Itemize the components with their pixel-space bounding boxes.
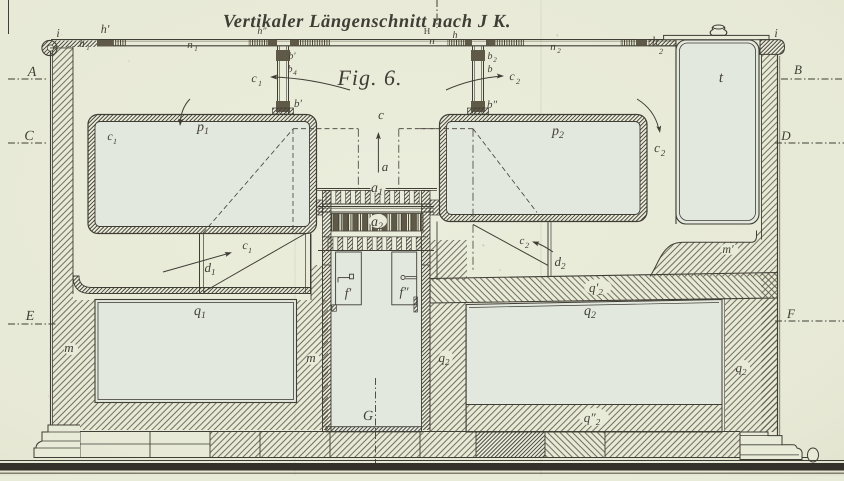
svg-text:C: C (24, 129, 34, 144)
svg-text:f″: f″ (399, 284, 409, 299)
svg-text:1: 1 (248, 246, 252, 255)
svg-text:b: b (488, 64, 493, 75)
svg-text:2: 2 (659, 47, 663, 56)
svg-text:n: n (187, 39, 193, 51)
svg-text:2: 2 (557, 47, 561, 55)
svg-text:E: E (25, 309, 35, 324)
svg-text:1: 1 (113, 137, 117, 146)
svg-text:1: 1 (194, 45, 198, 53)
svg-text:D: D (780, 128, 791, 143)
svg-text:a: a (382, 159, 389, 174)
svg-text:i: i (56, 26, 59, 40)
svg-text:Fig. 6.: Fig. 6. (336, 65, 402, 90)
svg-text:m: m (64, 340, 73, 355)
svg-text:4: 4 (293, 69, 297, 77)
svg-text:b″: b″ (487, 99, 498, 111)
svg-text:2: 2 (516, 77, 520, 86)
svg-text:b: b (488, 51, 493, 62)
svg-text:h: h (79, 38, 85, 50)
svg-text:B: B (794, 62, 802, 77)
svg-text:c: c (509, 69, 515, 83)
svg-text:A: A (27, 65, 37, 80)
svg-text:f′: f′ (345, 285, 352, 300)
svg-text:b′: b′ (288, 51, 296, 62)
svg-text:c: c (251, 71, 257, 85)
svg-text:h″: h″ (257, 26, 267, 37)
svg-text:i: i (774, 26, 777, 40)
svg-text:h: h (652, 34, 658, 48)
svg-text:b: b (288, 64, 293, 75)
svg-text:b′: b′ (294, 98, 303, 110)
svg-text:c: c (654, 140, 660, 155)
svg-text:F: F (786, 306, 796, 321)
svg-text:2: 2 (493, 56, 497, 64)
svg-text:m′: m′ (722, 242, 734, 256)
svg-text:2: 2 (525, 241, 529, 250)
svg-text:h′: h′ (101, 22, 110, 36)
svg-text:h: h (453, 30, 458, 41)
svg-text:2: 2 (661, 148, 666, 158)
svg-text:c: c (378, 107, 384, 122)
svg-text:n: n (429, 35, 435, 47)
svg-text:1: 1 (86, 44, 90, 52)
svg-text:c: c (520, 235, 525, 247)
svg-text:n: n (550, 41, 556, 53)
svg-text:m: m (306, 350, 315, 365)
svg-text:1: 1 (258, 79, 262, 88)
svg-text:G: G (363, 409, 373, 424)
